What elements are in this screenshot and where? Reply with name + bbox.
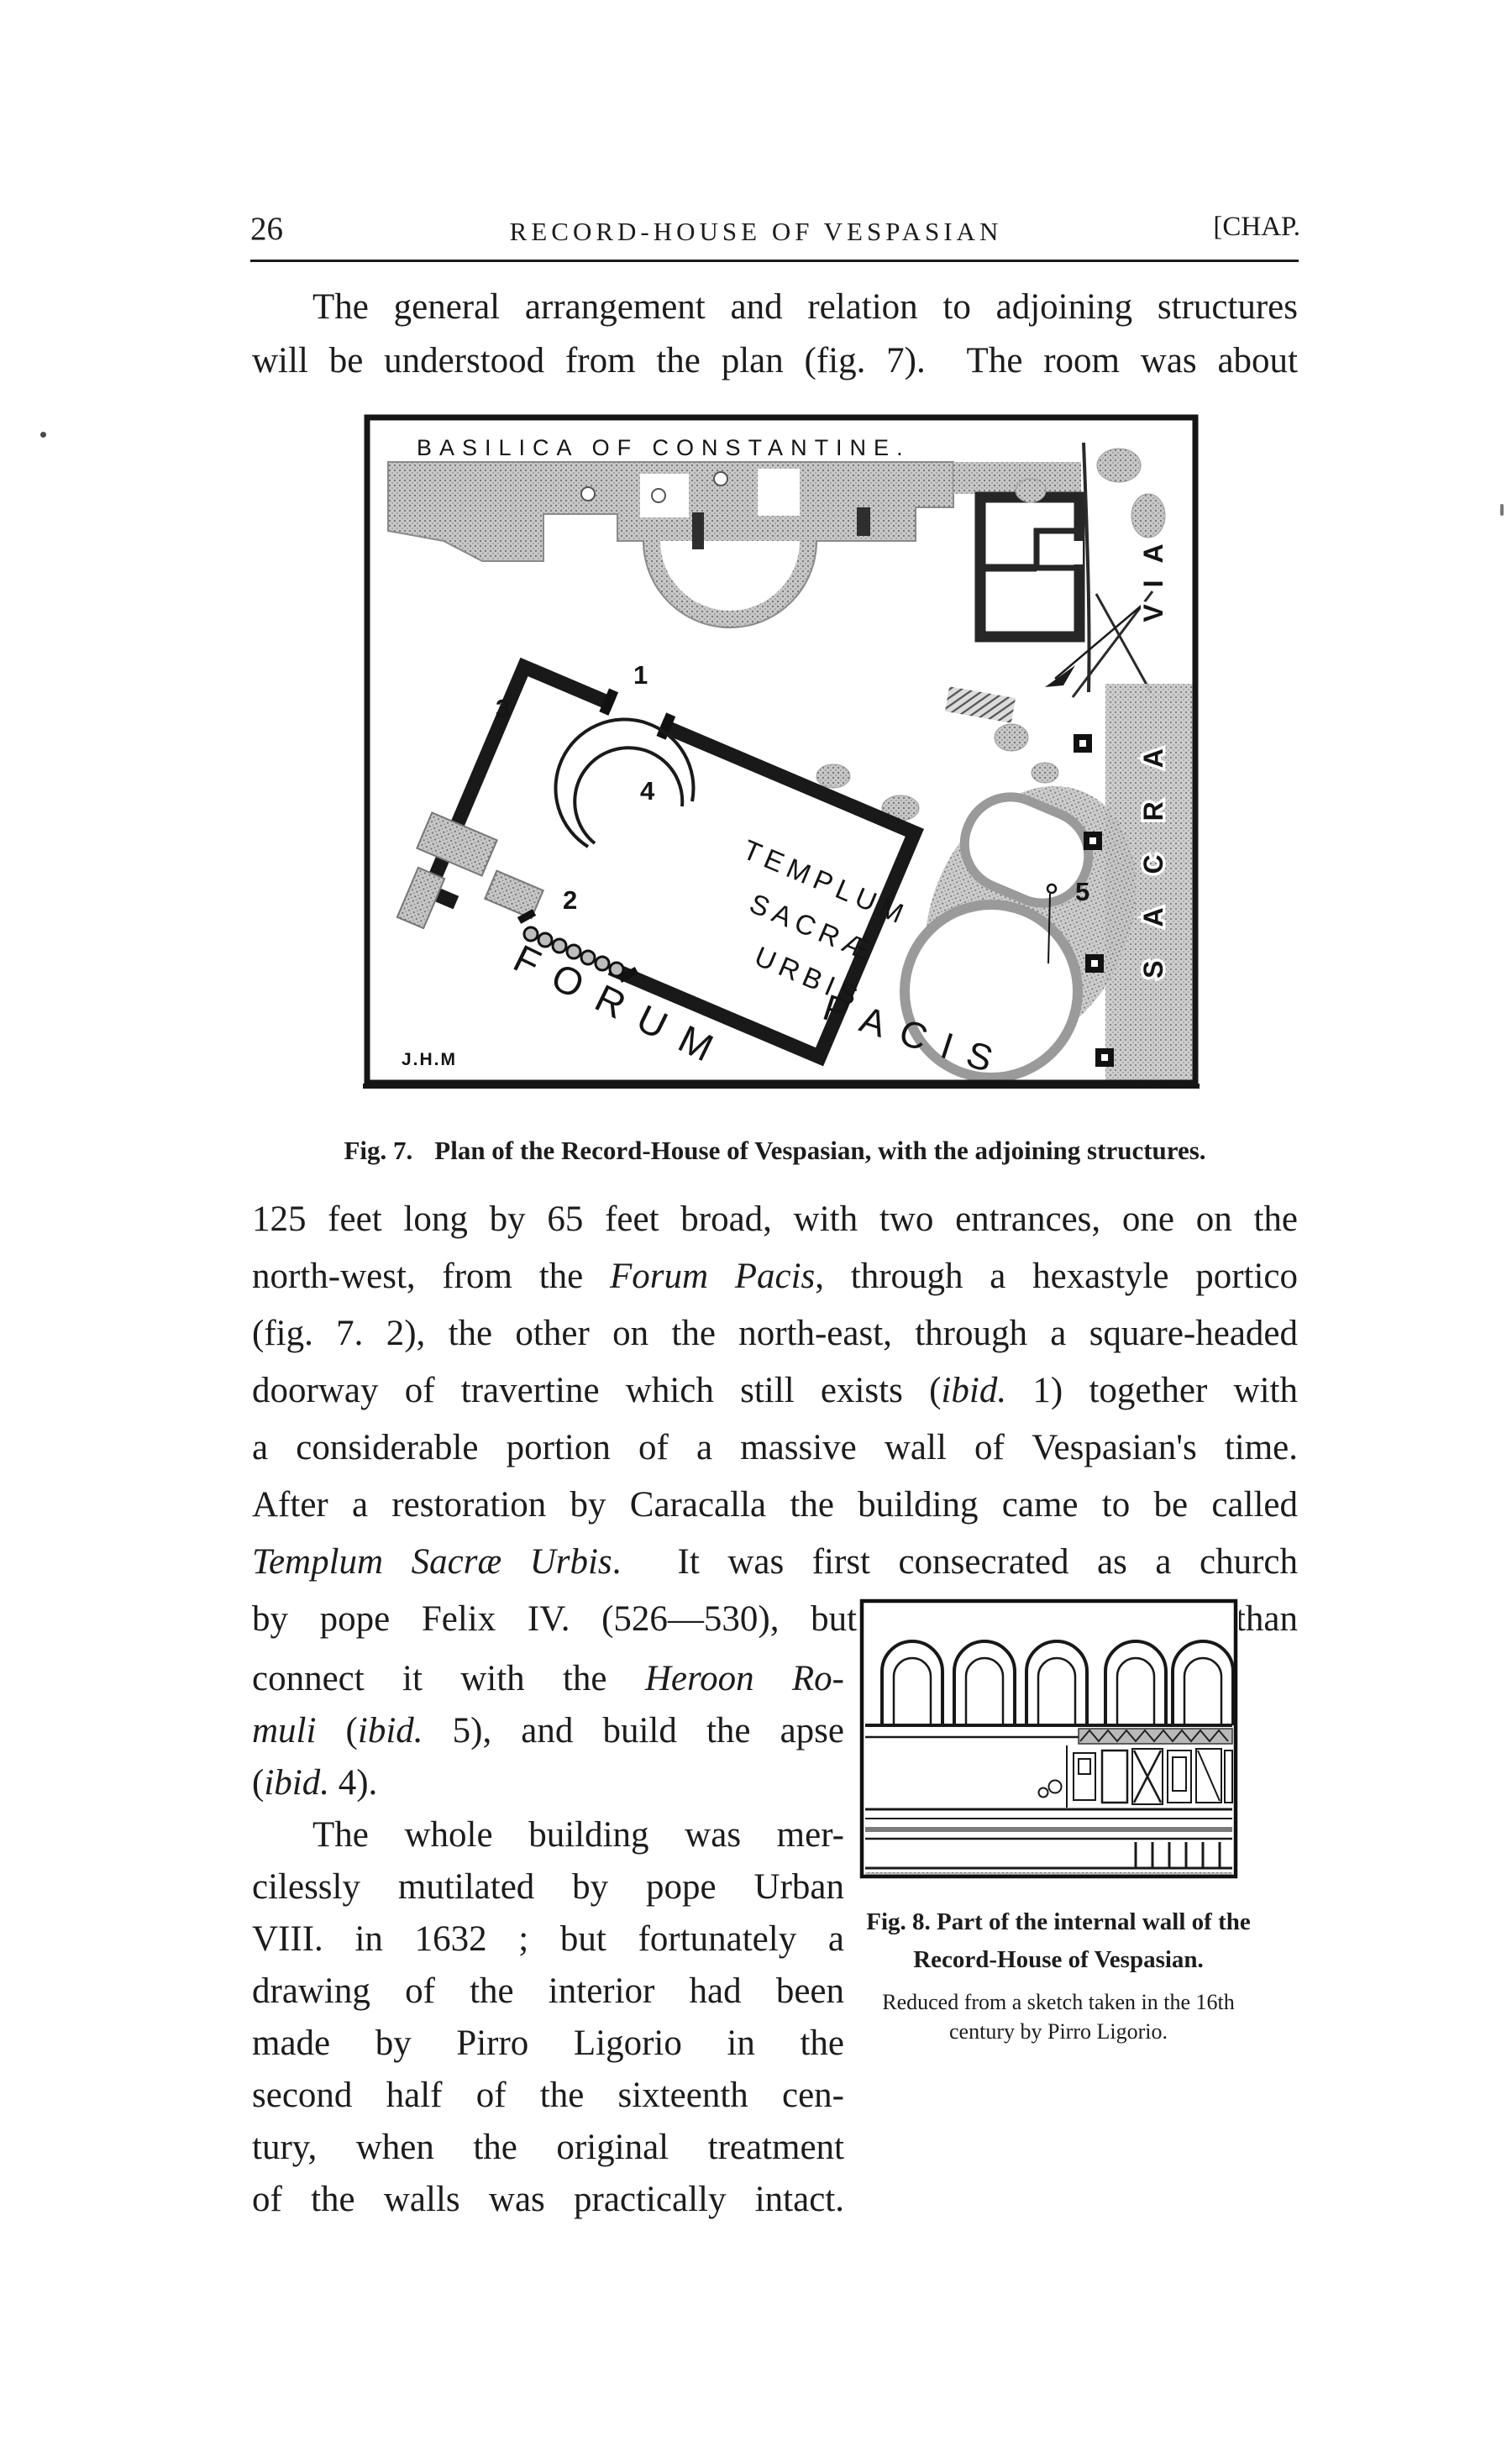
text-line: The general arrangement and relation to … (252, 281, 1298, 334)
text-line: doorway of travertine which still exists… (252, 1362, 1298, 1420)
fig7-caption: Fig. 7.Plan of the Record-House of Vespa… (252, 1136, 1298, 1166)
text-line: second half of the sixteenth cen- (252, 2070, 844, 2122)
plan-number-2: 2 (563, 885, 577, 915)
text-line: made by Pirro Ligorio in the (252, 2018, 844, 2070)
text-line: cilessly mutilated by pope Urban (252, 1861, 844, 1913)
plan-initials: J.H.M (402, 1050, 457, 1069)
header-rule (250, 260, 1299, 262)
fig8-note-line: Reduced from a sketch taken in the 16th (840, 1987, 1277, 2017)
figure7-plan: BASILICA OF CONSTANTINE. TEMPLUM SACRÆ U… (363, 413, 1200, 1090)
plan-label-basilica: BASILICA OF CONSTANTINE. (417, 435, 911, 460)
text-line: Templum Sacræ Urbis. It was first consec… (252, 1534, 1298, 1591)
plan-number-3: 3 (496, 694, 510, 723)
left-column: connect it with the Heroon Ro- muli (ibi… (252, 1653, 844, 2226)
fig8-caption: Fig. 8. Part of the internal wall of the… (840, 1903, 1277, 2046)
stray-ink-dot (40, 432, 46, 438)
text-line: After a restoration by Caracalla the bui… (252, 1477, 1298, 1534)
intro-paragraph: The general arrangement and relation to … (252, 281, 1298, 388)
chapter-label: [CHAP. (1213, 212, 1300, 243)
text-line: drawing of the interior had been (252, 1966, 844, 2018)
book-page: 26 RECORD-HOUSE OF VESPASIAN [CHAP. The … (0, 0, 1512, 2446)
text-line: a considerable portion of a massive wall… (252, 1420, 1298, 1477)
text-line: muli (ibid. 5), and build the apse (252, 1705, 844, 1757)
figure8-wall-drawing (858, 1598, 1239, 1882)
text-line: 125 feet long by 65 feet broad, with two… (252, 1191, 1298, 1248)
text-line: (fig. 7. 2), the other on the north-east… (252, 1305, 1298, 1362)
plan-number-1: 1 (633, 660, 648, 690)
text-line: connect it with the Heroon Ro- (252, 1653, 844, 1705)
fig7-plan-svg: BASILICA OF CONSTANTINE. TEMPLUM SACRÆ U… (363, 413, 1200, 1090)
plan-number-4: 4 (640, 776, 655, 806)
stray-ink-mark (1500, 504, 1504, 516)
text-line: VIII. in 1632 ; but fortunately a (252, 1913, 844, 1966)
plan-label-sacra: SACRA (1138, 715, 1168, 979)
fig8-caption-line: Record-House of Vespasian. (840, 1941, 1277, 1979)
text-line: of the walls was practically intact. (252, 2174, 844, 2226)
plan-label-via: VIA (1138, 527, 1168, 622)
fig8-caption-line: Fig. 8. Part of the internal wall of the (840, 1903, 1277, 1941)
fig7-caption-text: Plan of the Record-House of Vespasian, w… (434, 1136, 1205, 1165)
fig8-note-line: century by Pirro Ligorio. (840, 2017, 1277, 2046)
text-line: tury, when the original treatment (252, 2122, 844, 2174)
text-line: north-west, from the Forum Pacis, throug… (252, 1248, 1298, 1305)
body-paragraph: 125 feet long by 65 feet broad, with two… (252, 1191, 1298, 1648)
plan-number-5: 5 (1075, 877, 1089, 906)
fig7-caption-label: Fig. 7. (344, 1136, 412, 1165)
text-line: The whole building was mer- (252, 1809, 844, 1861)
text-line: (ibid. 4). (252, 1757, 844, 1809)
fig8-wall-svg (858, 1598, 1239, 1882)
text-line: will be understood from the plan (fig. 7… (252, 334, 1298, 388)
